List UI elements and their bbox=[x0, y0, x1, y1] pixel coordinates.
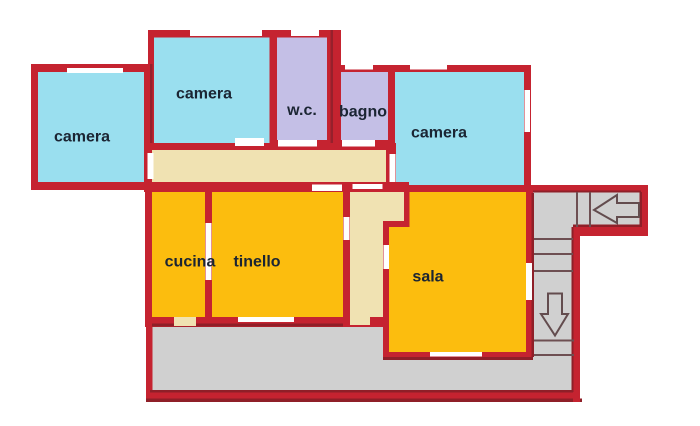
svg-text:w.c.: w.c. bbox=[286, 102, 317, 119]
svg-text:tinello: tinello bbox=[233, 254, 280, 271]
svg-text:bagno: bagno bbox=[339, 104, 387, 121]
svg-text:sala: sala bbox=[412, 269, 443, 286]
svg-text:camera: camera bbox=[176, 86, 232, 103]
svg-text:camera: camera bbox=[411, 125, 467, 142]
svg-text:cucina: cucina bbox=[165, 254, 216, 271]
svg-text:camera: camera bbox=[54, 129, 110, 146]
